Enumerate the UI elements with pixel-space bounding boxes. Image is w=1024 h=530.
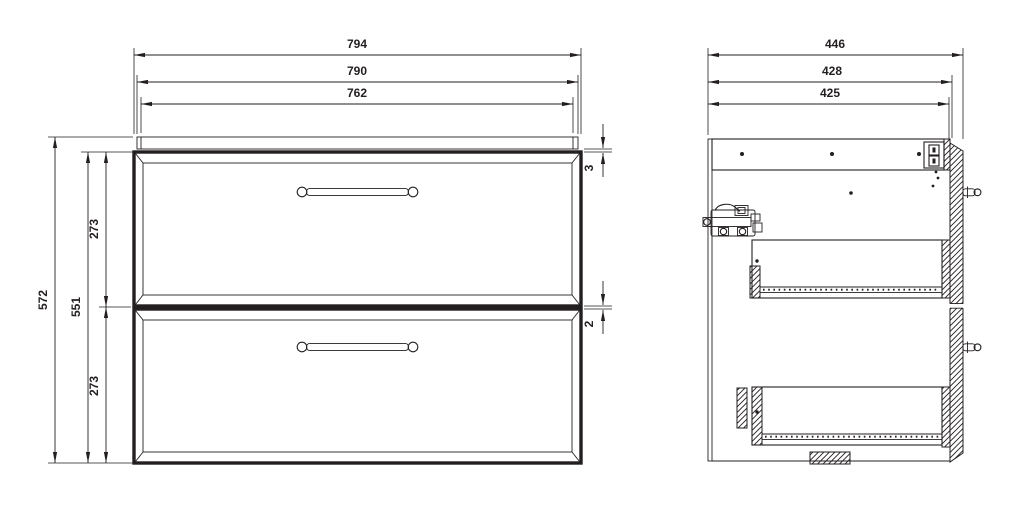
drawer-1-front [134,152,581,306]
rail-hole [917,152,921,156]
dim-drawer2-height: 273 [87,307,106,463]
upper-drawer-box [750,240,950,298]
dim-label-overall-depth: 446 [825,37,845,51]
handle-end-left [297,187,307,197]
drawer-1-bevel [143,163,572,295]
drawer-2-bevel [143,320,572,452]
dim-drawer1-height: 273 [87,152,131,307]
front-view: 794 790 762 572 551 273 [36,37,612,463]
dim-front-height: 551 [69,152,133,463]
rail-hole [830,152,834,156]
dim-label-drawer1-height: 273 [87,219,101,239]
dim-face-width: 762 [141,86,573,133]
dim-label-top-reveal: 3 [582,164,596,171]
dim-label-drawer-gap: 2 [582,320,596,327]
fascia-top-mount-section [944,139,950,170]
side-handle-lower [963,342,981,354]
cabinet-dimension-drawing: 794 790 762 572 551 273 [0,0,1024,530]
dim-label-inner-depth: 425 [820,86,840,100]
handle-bar [307,344,409,351]
side-handle-upper [963,187,981,199]
drawer-back-section [750,266,760,298]
top-panel [137,137,578,149]
dim-carcass-depth: 428 [708,64,952,138]
dim-label-overall-width: 794 [347,37,367,51]
technical-drawing-canvas: 794 790 762 572 551 273 [0,0,1024,530]
top-rail [712,139,944,170]
handle-end-left [297,342,307,352]
handle-bar [307,189,409,196]
fascia-section [949,143,964,462]
drawer-front-section [942,387,950,447]
pin-hole [755,259,758,262]
lower-drawer-box [737,387,950,447]
dim-inner-depth: 425 [708,86,949,140]
back-panel [708,139,712,461]
rail-hole [740,152,744,156]
rear-bracket-section [737,388,747,428]
dim-label-face-width: 762 [347,86,367,100]
dim-top-reveal: 3 [582,124,612,177]
handle-end-right [408,342,418,352]
drawer-front-section [942,240,950,298]
dim-overall-height: 572 [36,137,133,463]
mounting-bracket [924,142,944,168]
fixing-holes [849,171,939,195]
drawer-2-handle [297,342,418,352]
pin-hole [755,410,758,413]
dim-drawer-gap: 2 [582,281,612,334]
dim-label-carcass-depth: 428 [822,64,842,78]
dim-label-carcass-width: 790 [347,64,367,78]
drawer-2-front [134,309,581,463]
drawer-back-section [752,387,762,445]
side-view: 446 428 425 [703,37,981,464]
handle-end-right [408,187,418,197]
bottom-rail-section [810,452,850,464]
drawer-1-handle [297,187,418,197]
dim-label-drawer2-height: 273 [87,376,101,396]
dim-label-overall-height: 572 [36,290,50,310]
dim-label-front-height: 551 [69,297,83,317]
